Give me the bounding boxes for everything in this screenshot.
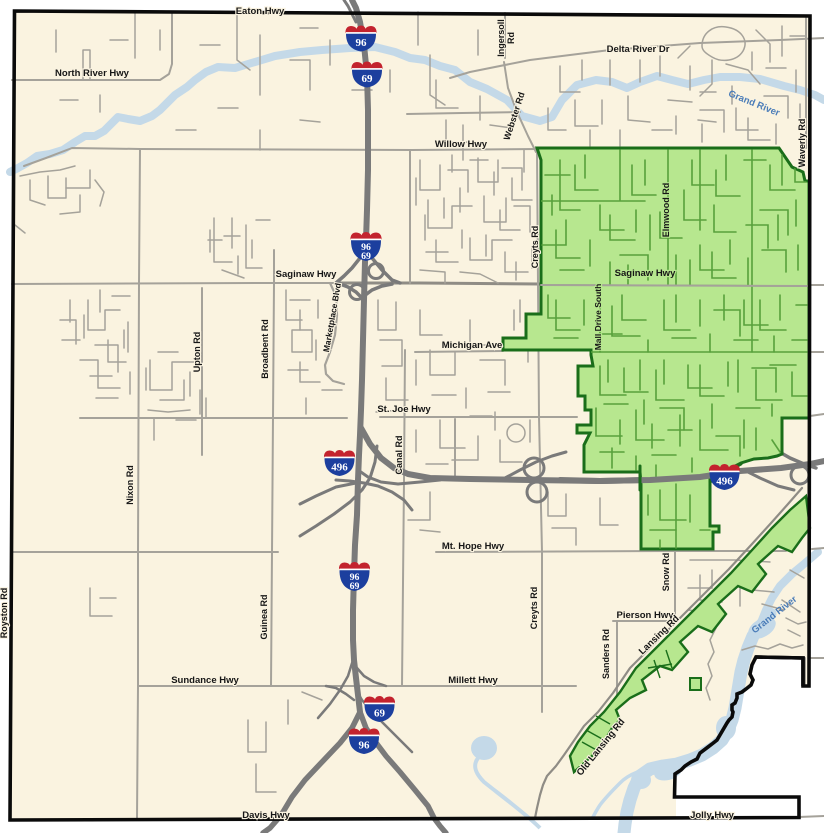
svg-text:69: 69 [362,73,374,85]
svg-text:96: 96 [356,37,368,49]
svg-text:96: 96 [359,740,371,752]
svg-text:Broadbent Rd: Broadbent Rd [260,319,270,379]
svg-text:Creyts Rd: Creyts Rd [529,587,539,630]
svg-text:North River Hwy: North River Hwy [55,68,130,79]
svg-text:69: 69 [350,581,360,592]
svg-text:Sanders Rd: Sanders Rd [601,629,611,679]
svg-text:Delta River Dr: Delta River Dr [607,44,670,55]
svg-text:69: 69 [361,251,371,262]
svg-text:Creyts Rd: Creyts Rd [530,226,540,269]
svg-text:Waverly Rd: Waverly Rd [797,119,807,168]
svg-text:Eaton Hwy: Eaton Hwy [236,6,285,17]
svg-text:Guinea Rd: Guinea Rd [259,594,269,639]
svg-text:Sundance Hwy: Sundance Hwy [171,675,239,686]
svg-text:Saginaw Hwy: Saginaw Hwy [615,268,676,279]
svg-text:Millett Hwy: Millett Hwy [448,675,498,686]
svg-text:Nixon Rd: Nixon Rd [125,465,135,505]
svg-text:496: 496 [331,462,348,474]
svg-text:Mt. Hope Hwy: Mt. Hope Hwy [442,541,505,552]
svg-text:Saginaw Hwy: Saginaw Hwy [276,269,337,280]
svg-text:Royston Rd: Royston Rd [0,588,9,639]
svg-text:Rd: Rd [506,32,516,44]
svg-text:St. Joe Hwy: St. Joe Hwy [377,404,431,415]
svg-text:69: 69 [374,708,386,720]
svg-text:Jolly Hwy: Jolly Hwy [690,810,735,821]
svg-text:Mall Drive South: Mall Drive South [593,284,603,351]
svg-text:Upton Rd: Upton Rd [192,332,202,373]
svg-text:Michigan Ave: Michigan Ave [442,340,503,351]
svg-text:496: 496 [716,476,733,488]
svg-text:Davis Hwy: Davis Hwy [242,810,290,821]
svg-text:Canal Rd: Canal Rd [394,435,404,474]
svg-text:Willow Hwy: Willow Hwy [435,139,488,150]
svg-text:Pierson Hwy: Pierson Hwy [616,610,674,621]
svg-text:Ingersoll: Ingersoll [496,19,506,57]
svg-text:Snow Rd: Snow Rd [661,553,671,592]
svg-text:Elmwood Rd: Elmwood Rd [661,183,671,238]
